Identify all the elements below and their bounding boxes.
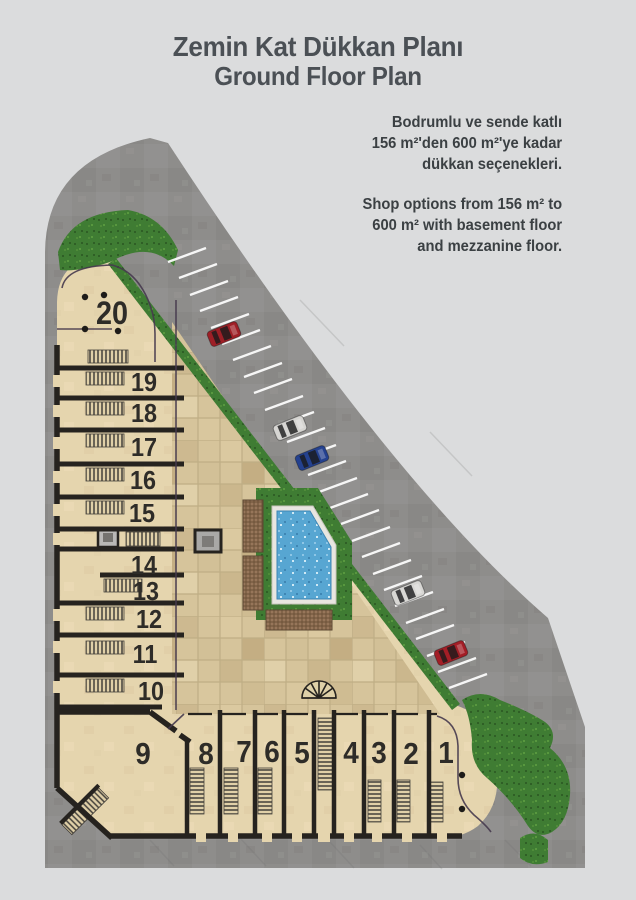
shop-number: 12: [136, 606, 162, 634]
landscape-bottom-right: [520, 833, 548, 864]
shop-number: 19: [131, 369, 157, 397]
shop-number: 3: [371, 736, 387, 771]
shop-number: 4: [343, 736, 359, 771]
shop-number: 1: [438, 736, 454, 771]
shop-number: 15: [129, 500, 155, 528]
shop-number: 9: [135, 737, 151, 772]
shop-number: 14: [131, 552, 157, 580]
shop-number: 11: [133, 641, 158, 669]
desc-line: dükkan seçenekleri.: [362, 154, 562, 175]
brochure-page: 20 19 18 17 16 15 14 13 12 11 10 9 8 7 6…: [0, 0, 636, 900]
page-title: Zemin Kat Dükkan Planı Ground Floor Plan: [22, 31, 613, 91]
desc-line: 600 m² with basement floor: [362, 215, 562, 236]
shop-number: 18: [131, 400, 157, 428]
desc-line: Bodrumlu ve sende katlı: [362, 112, 562, 133]
description-english: Shop options from 156 m² to 600 m² with …: [362, 194, 562, 257]
shop-number: 20: [96, 296, 128, 332]
shop-number: 8: [198, 737, 214, 772]
title-english: Ground Floor Plan: [22, 62, 613, 91]
shop-number: 16: [130, 467, 156, 495]
shop-number: 6: [264, 735, 280, 770]
description-turkish: Bodrumlu ve sende katlı 156 m²'den 600 m…: [362, 112, 562, 175]
shop-number: 10: [138, 678, 164, 706]
description: Bodrumlu ve sende katlı 156 m²'den 600 m…: [362, 112, 562, 257]
shop-number: 5: [294, 736, 310, 771]
desc-line: Shop options from 156 m² to: [362, 194, 562, 215]
title-turkish: Zemin Kat Dükkan Planı: [22, 31, 613, 62]
shop-number: 17: [131, 434, 157, 462]
desc-line: 156 m²'den 600 m²'ye kadar: [362, 133, 562, 154]
shop-number: 7: [236, 735, 252, 770]
desc-line: and mezzanine floor.: [362, 236, 562, 257]
shop-number: 13: [133, 578, 159, 606]
shop-number: 2: [403, 737, 419, 772]
